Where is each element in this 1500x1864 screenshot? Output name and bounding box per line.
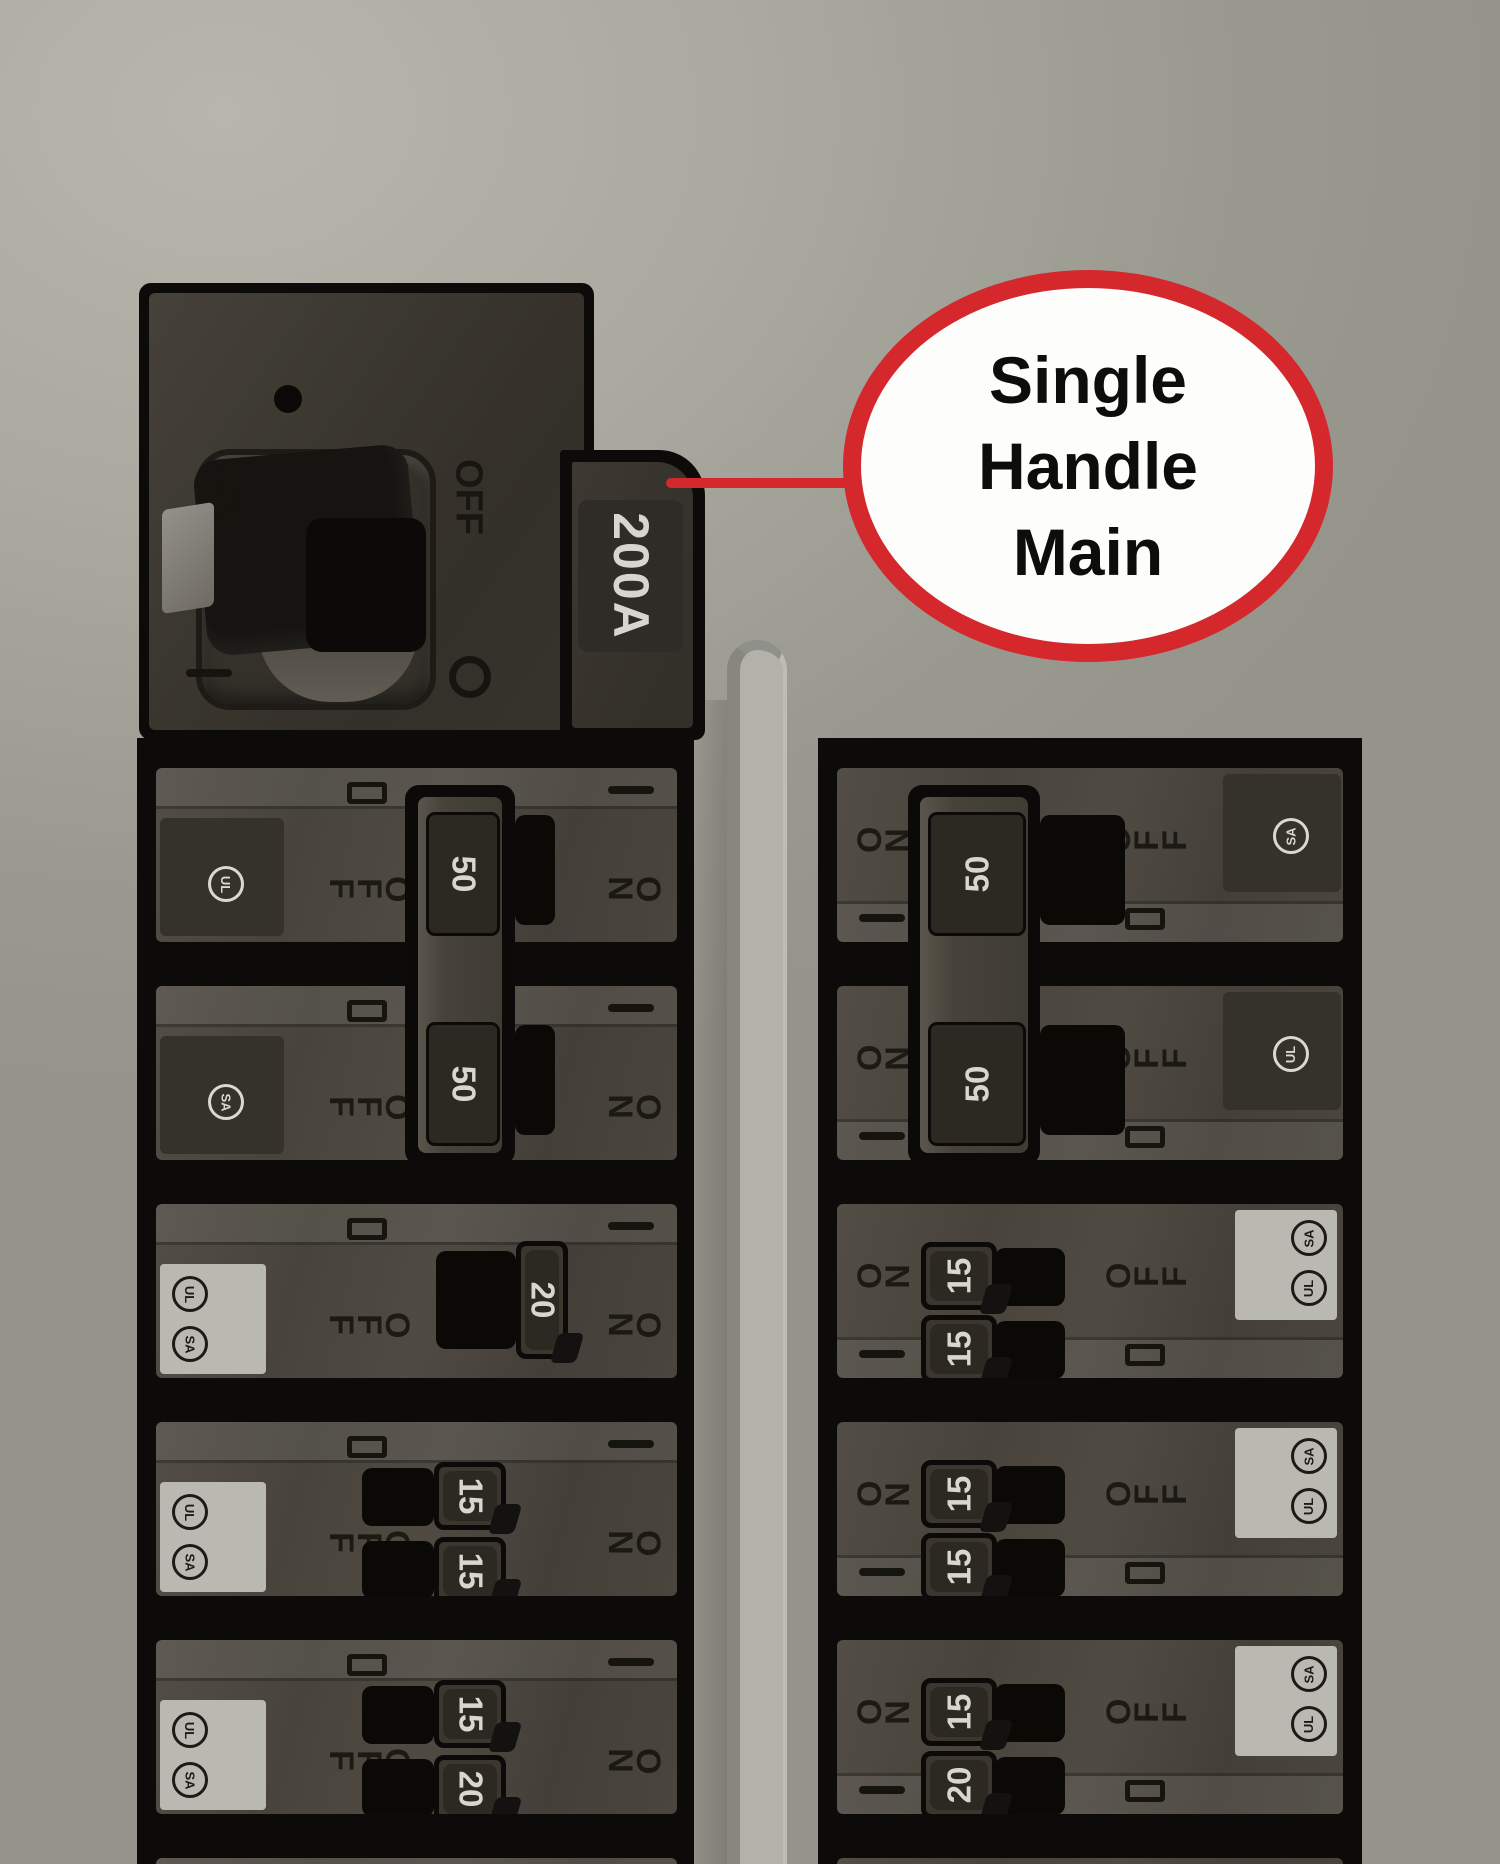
dash-marker: [859, 1132, 905, 1140]
ul-logo-icon: UL: [1273, 1036, 1309, 1072]
csa-logo-icon: SA: [1291, 1656, 1327, 1692]
breaker-row-face: [156, 1858, 677, 1864]
dash-marker: [608, 1658, 654, 1666]
logo-plate: ULSA: [160, 1700, 266, 1810]
amp-rating: 15: [451, 1553, 489, 1590]
rating-plate: 200A: [578, 500, 683, 652]
amp-window: 50: [426, 812, 500, 936]
amp-rating: 15: [940, 1258, 978, 1295]
test-window: [347, 1654, 387, 1676]
callout-connector-line: [666, 478, 858, 488]
amp-rating: 20: [523, 1282, 561, 1319]
off-label-letter: F: [1156, 1482, 1195, 1507]
logo-monogram: UL: [219, 875, 234, 892]
off-label: OFF: [1095, 1684, 1199, 1740]
breaker-row: [824, 1845, 1356, 1864]
ul-logo-icon: UL: [172, 1494, 208, 1530]
off-label-letter: F: [1156, 1046, 1195, 1071]
ul-logo-icon: UL: [208, 866, 244, 902]
amp-window: 50: [426, 1022, 500, 1146]
on-label-letter: N: [879, 1264, 918, 1289]
ul-logo-icon: UL: [172, 1712, 208, 1748]
logo-zone: SA: [160, 1036, 284, 1154]
off-label: FFO: [316, 1296, 420, 1352]
on-label: ON: [845, 1248, 923, 1304]
callout-line: Handle: [978, 423, 1198, 509]
row-face-band: [837, 1337, 1343, 1378]
handle-body[interactable]: [362, 1686, 434, 1744]
breaker-row: OFFONSAUL1515: [824, 1409, 1356, 1609]
off-label: OFF: [1095, 1248, 1199, 1304]
breaker-row: FFONOULSA20: [143, 1191, 690, 1391]
row-face-band: [156, 1640, 677, 1681]
on-label: NO: [594, 1296, 672, 1352]
breaker-row-face: FFONOULSA20: [156, 1204, 677, 1378]
breaker-row: [143, 1845, 690, 1864]
logo-monogram: SA: [183, 1553, 198, 1571]
logo-plate: SAUL: [1235, 1428, 1337, 1538]
logo-monogram: SA: [1302, 1229, 1317, 1247]
csa-logo-icon: SA: [172, 1326, 208, 1362]
on-label: ON: [845, 1684, 923, 1740]
amp-window: 15: [930, 1251, 988, 1301]
amp-window: 20: [525, 1250, 559, 1350]
on-label: NO: [594, 1514, 672, 1570]
ul-logo-icon: UL: [1291, 1706, 1327, 1742]
test-window: [347, 1218, 387, 1240]
off-label: OFF: [1095, 1466, 1199, 1522]
row-face-band: [156, 1422, 677, 1463]
handle-body[interactable]: [1040, 1025, 1125, 1135]
off-label-letter: F: [1156, 1700, 1195, 1725]
dash-marker: [859, 1350, 905, 1358]
logo-monogram: UL: [1302, 1497, 1317, 1514]
amp-rating: 15: [940, 1549, 978, 1586]
test-window: [347, 782, 387, 804]
off-label-letter: F: [1156, 828, 1195, 853]
csa-logo-icon: SA: [172, 1762, 208, 1798]
logo-monogram: SA: [219, 1093, 234, 1111]
amp-rating: 20: [940, 1767, 978, 1804]
amp-window: 50: [928, 1022, 1026, 1146]
callout-line: Single: [989, 337, 1187, 423]
dash-marker: [859, 1786, 905, 1794]
amp-rating: 15: [451, 1478, 489, 1515]
logo-plate: SAUL: [1235, 1210, 1337, 1320]
breaker-row: OFFONSAUL1520: [824, 1627, 1356, 1827]
logo-monogram: SA: [1284, 827, 1299, 845]
dash-marker: [608, 1004, 654, 1012]
breaker-row-face: FFONOULSA1520: [156, 1640, 677, 1814]
on-label: NO: [594, 1732, 672, 1788]
on-label-letter: O: [628, 1748, 667, 1773]
amp-rating: 50: [958, 856, 996, 893]
dash-marker: [859, 914, 905, 922]
main-rocker-handle-edge[interactable]: [306, 518, 426, 652]
logo-monogram: SA: [183, 1335, 198, 1353]
ul-logo-icon: UL: [172, 1276, 208, 1312]
handle-body[interactable]: [362, 1468, 434, 1526]
csa-logo-icon: SA: [1273, 818, 1309, 854]
test-window: [1125, 1562, 1165, 1584]
amp-rating: 15: [940, 1694, 978, 1731]
amp-window: 15: [443, 1689, 497, 1739]
on-label-letter: N: [879, 1700, 918, 1725]
rating-label-200a: 200A: [602, 512, 660, 640]
logo-zone: UL: [1223, 992, 1341, 1110]
on-label-letter: O: [628, 1530, 667, 1555]
amp-window: 15: [930, 1687, 988, 1737]
logo-monogram: UL: [1302, 1715, 1317, 1732]
row-face-band: [837, 1773, 1343, 1814]
breaker-panel-diagram: FFONOULFFONOSAFFONOULSA20FFONOULSA1515FF…: [0, 0, 1500, 1864]
ul-logo-icon: UL: [1291, 1270, 1327, 1306]
breaker-row-face: OFFONSAUL1515: [837, 1204, 1343, 1378]
ul-logo-icon: UL: [1291, 1488, 1327, 1524]
test-window: [347, 1436, 387, 1458]
on-label-letter: N: [879, 1482, 918, 1507]
amp-rating: 50: [444, 1066, 482, 1103]
on-label: NO: [594, 860, 672, 916]
on-label-letter: O: [628, 1094, 667, 1119]
off-label-letter: O: [377, 1312, 416, 1337]
amp-rating: 15: [451, 1696, 489, 1733]
dash-marker: [608, 1222, 654, 1230]
logo-monogram: UL: [1284, 1045, 1299, 1062]
breaker-columns: FFONOULFFONOSAFFONOULSA20FFONOULSA1515FF…: [0, 0, 1500, 1864]
breaker-row: FFONOULSA1515: [143, 1409, 690, 1609]
amp-window: 15: [930, 1542, 988, 1592]
handle-body[interactable]: [436, 1251, 516, 1349]
amp-window: 50: [928, 812, 1026, 936]
callout-bubble: Single Handle Main: [843, 270, 1333, 662]
row-face-band: [837, 1555, 1343, 1596]
breaker-row: FFONOULSA1520: [143, 1627, 690, 1827]
logo-plate: SAUL: [1235, 1646, 1337, 1756]
csa-logo-icon: SA: [172, 1544, 208, 1580]
io-off-symbol: [449, 656, 491, 698]
logo-monogram: SA: [183, 1771, 198, 1789]
csa-logo-icon: SA: [208, 1084, 244, 1120]
breaker-row-face: OFFONSAUL1515: [837, 1422, 1343, 1596]
amp-rating: 15: [940, 1331, 978, 1368]
breaker-row-face: [837, 1858, 1343, 1864]
main-on-label: ON: [205, 466, 248, 523]
amp-rating: 20: [451, 1771, 489, 1808]
logo-monogram: SA: [1302, 1447, 1317, 1465]
dash-marker: [859, 1568, 905, 1576]
test-window: [1125, 1780, 1165, 1802]
test-window: [347, 1000, 387, 1022]
logo-monogram: UL: [183, 1285, 198, 1302]
csa-logo-icon: SA: [1291, 1438, 1327, 1474]
handle-body[interactable]: [362, 1759, 434, 1814]
amp-rating: 15: [940, 1476, 978, 1513]
io-on-symbol: [186, 669, 232, 677]
on-label: ON: [845, 1466, 923, 1522]
logo-plate: ULSA: [160, 1482, 266, 1592]
row-face-band: [156, 1204, 677, 1245]
breaker-row-face: OFFONSAUL1520: [837, 1640, 1343, 1814]
logo-monogram: SA: [1302, 1665, 1317, 1683]
handle-body[interactable]: [515, 815, 555, 925]
amp-window: 20: [930, 1760, 988, 1810]
indicator-dot: [274, 385, 302, 413]
handle-body[interactable]: [515, 1025, 555, 1135]
test-window: [1125, 1344, 1165, 1366]
on-label: NO: [594, 1078, 672, 1134]
breaker-row-face: FFONOULSA1515: [156, 1422, 677, 1596]
logo-plate: ULSA: [160, 1264, 266, 1374]
logo-monogram: UL: [1302, 1279, 1317, 1296]
handle-body[interactable]: [1040, 815, 1125, 925]
amp-rating: 50: [444, 856, 482, 893]
on-label-letter: O: [628, 876, 667, 901]
callout-line: Main: [1013, 509, 1163, 595]
logo-zone: SA: [1223, 774, 1341, 892]
logo-monogram: UL: [183, 1503, 198, 1520]
main-off-label: OFF: [447, 459, 490, 535]
off-label-letter: F: [1156, 1264, 1195, 1289]
logo-monogram: UL: [183, 1721, 198, 1738]
amp-window: 20: [443, 1764, 497, 1814]
amp-window: 15: [930, 1324, 988, 1374]
logo-zone: UL: [160, 818, 284, 936]
row-face-band: [156, 1858, 677, 1864]
handle-body[interactable]: [362, 1541, 434, 1596]
breaker-row: OFFONSAUL1515: [824, 1191, 1356, 1391]
amp-window: 15: [930, 1469, 988, 1519]
amp-rating: 50: [958, 1066, 996, 1103]
dash-marker: [608, 1440, 654, 1448]
on-label-letter: O: [628, 1312, 667, 1337]
test-window: [1125, 1126, 1165, 1148]
amp-window: 15: [443, 1471, 497, 1521]
amp-window: 15: [443, 1546, 497, 1596]
test-window: [1125, 908, 1165, 930]
dash-marker: [608, 786, 654, 794]
csa-logo-icon: SA: [1291, 1220, 1327, 1256]
